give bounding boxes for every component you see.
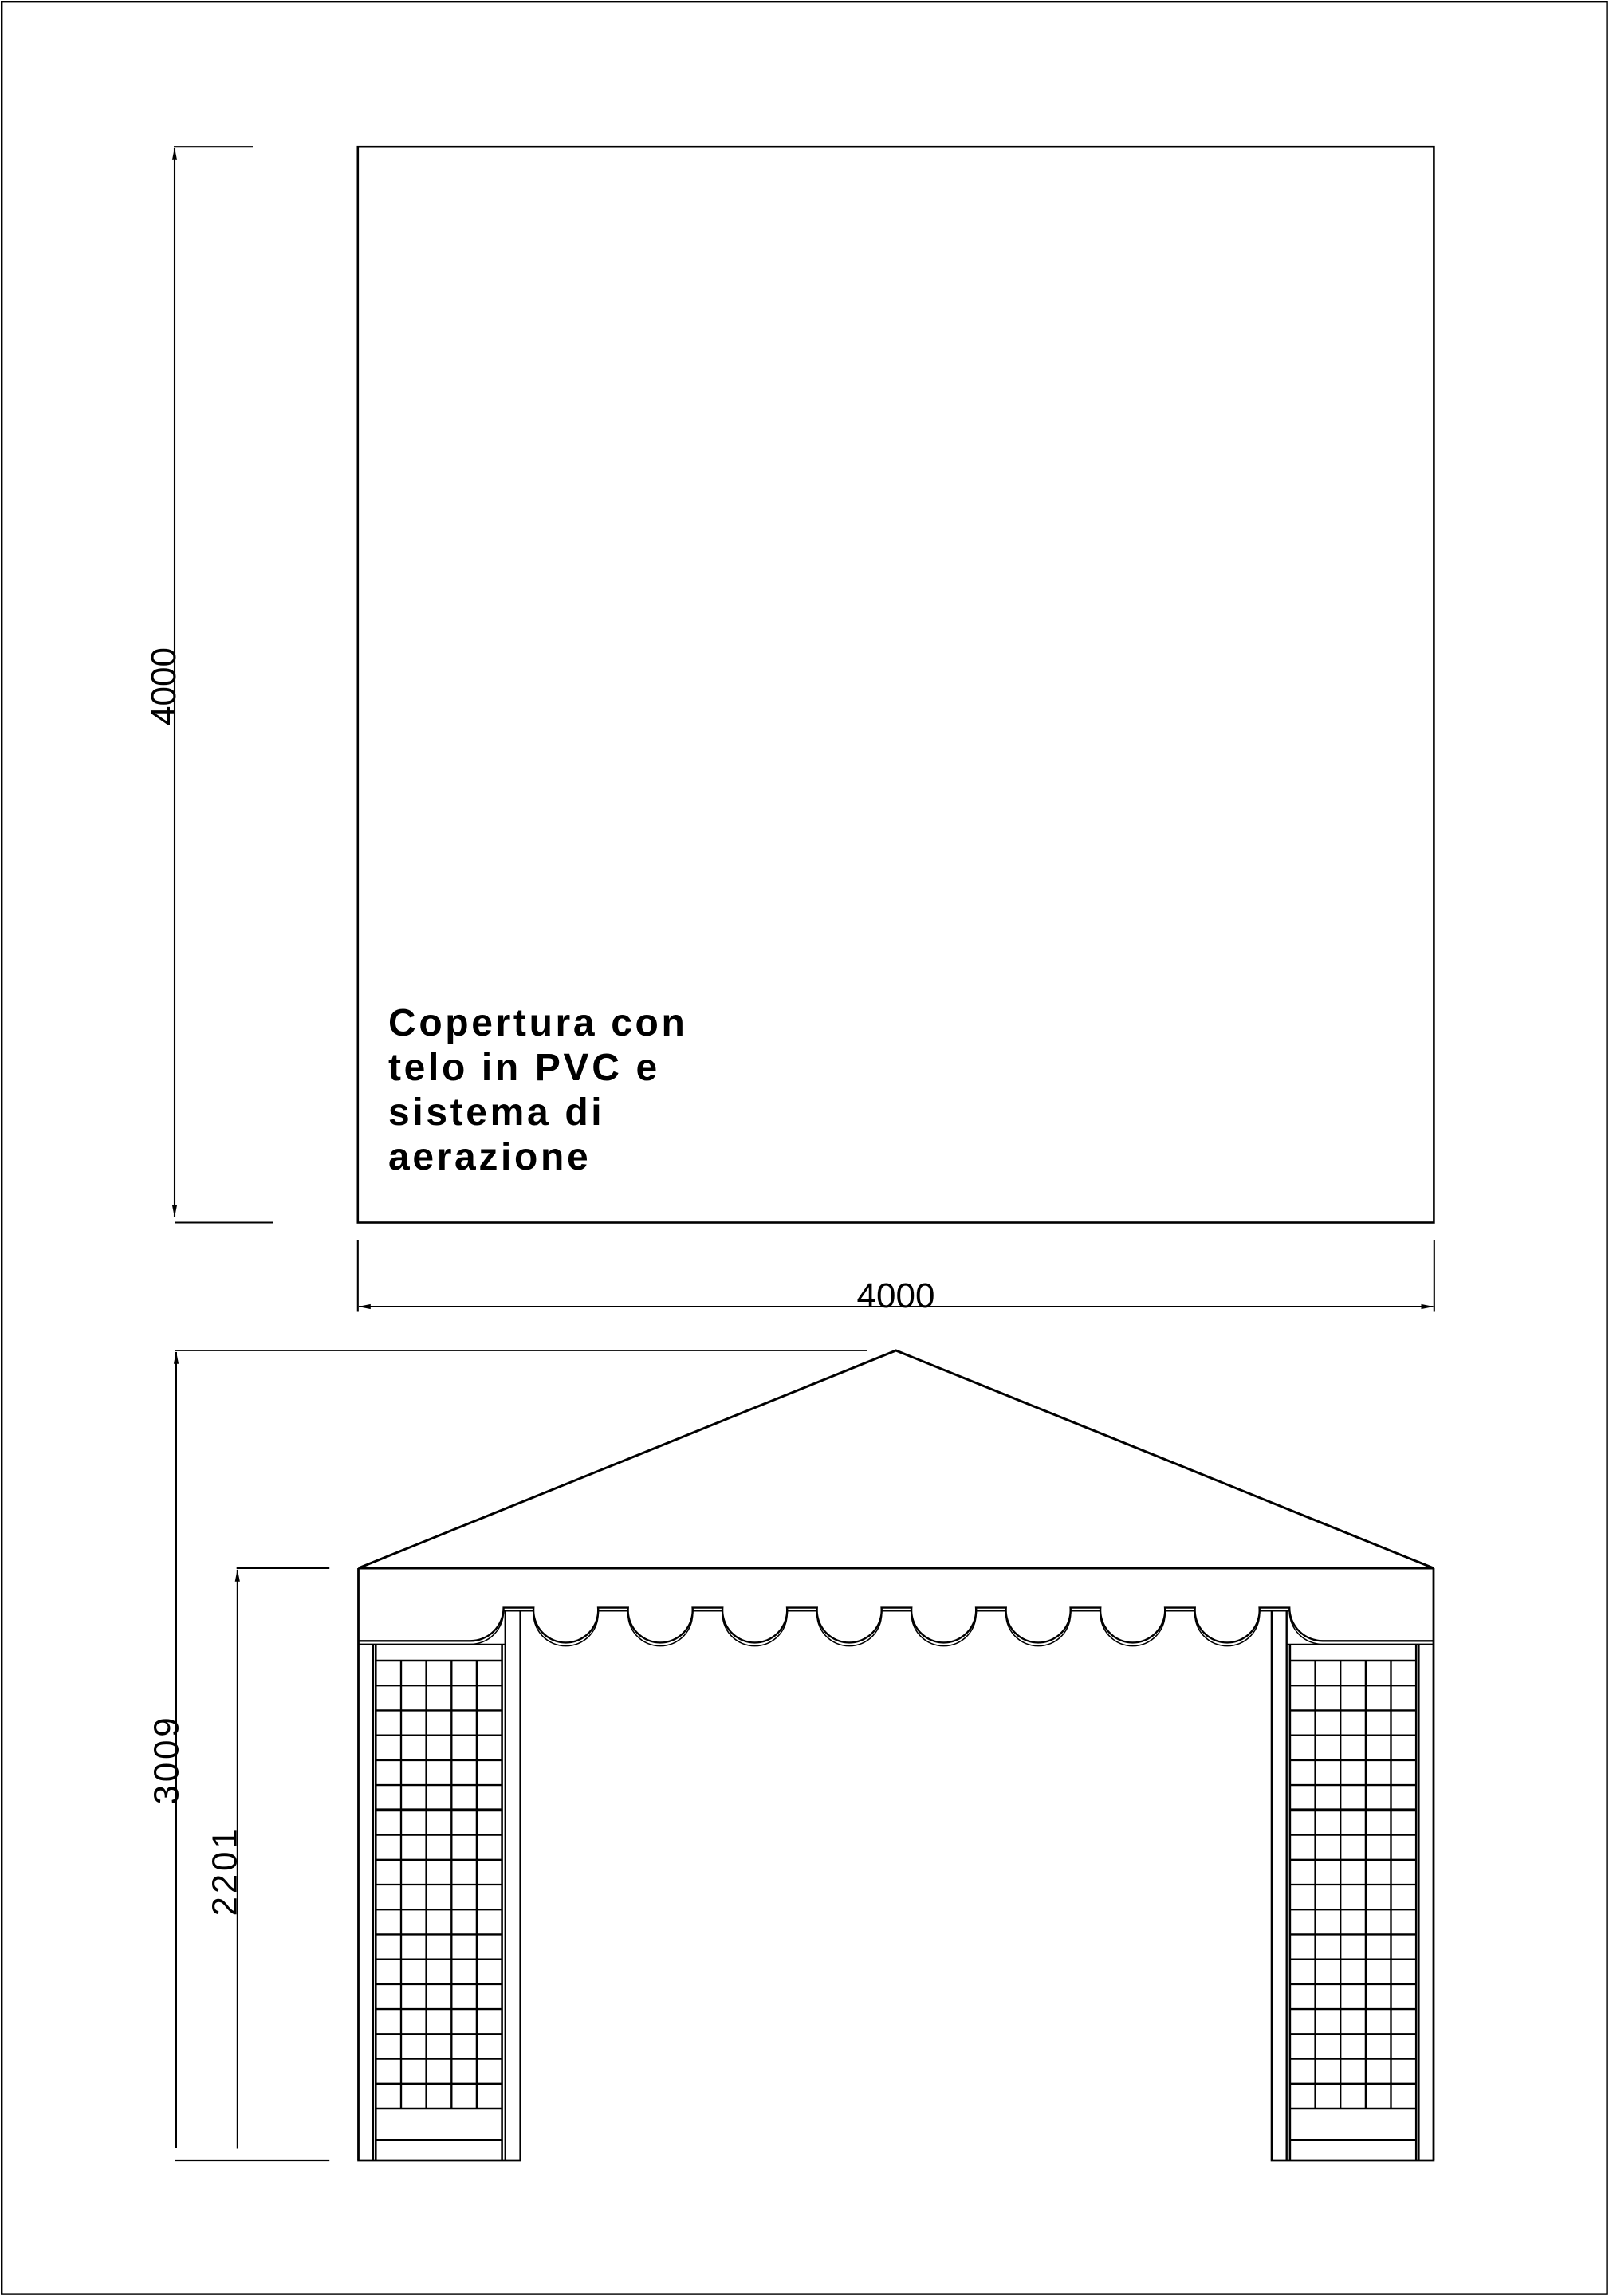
svg-text:4000: 4000	[857, 1276, 935, 1315]
svg-text:sistema di: sistema di	[388, 1091, 604, 1134]
svg-text:3009: 3009	[148, 1714, 187, 1804]
svg-text:telo in PVC e: telo in PVC e	[388, 1047, 660, 1089]
svg-text:Copertura con: Copertura con	[388, 1002, 687, 1044]
svg-text:4000: 4000	[144, 647, 183, 725]
svg-text:aerazione: aerazione	[388, 1136, 591, 1178]
svg-text:2201: 2201	[206, 1826, 245, 1916]
